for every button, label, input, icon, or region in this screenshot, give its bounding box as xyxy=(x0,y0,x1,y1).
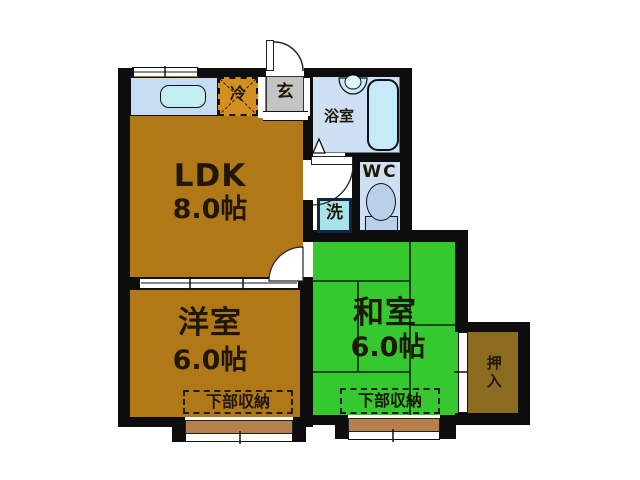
wall-mid-vertical xyxy=(300,288,313,427)
entrance-door-panel xyxy=(266,40,274,71)
wall-partition-stub-l xyxy=(128,277,140,290)
wall-west-bottom-stub-l xyxy=(172,417,185,442)
storage-western-box: 下部収納 xyxy=(183,390,293,414)
wall-top-right xyxy=(304,68,412,77)
kitchen-sink xyxy=(160,85,206,108)
bathtub xyxy=(367,79,399,151)
closet-sliding-door xyxy=(458,332,468,413)
corridor-door-panel xyxy=(311,156,353,165)
japanese-balcony-window xyxy=(348,431,440,440)
ldk-name: LDK xyxy=(130,160,290,193)
wall-corridor-wc xyxy=(352,162,360,233)
floor-plan: 下部収納 下部収納 LDK 8.0帖 洋室 6.0帖 和室 6.0帖 浴室 WC… xyxy=(0,0,640,480)
western-balcony xyxy=(185,420,293,434)
storage-japanese-box: 下部収納 xyxy=(340,388,440,414)
toilet-bowl xyxy=(366,183,396,221)
wall-top-corner xyxy=(118,68,134,77)
japanese-room-size: 6.0帖 xyxy=(318,334,458,362)
wall-left xyxy=(118,68,130,427)
wall-jp-bottom-stub-r xyxy=(440,415,456,439)
wall-japanese-right xyxy=(455,230,468,330)
western-balcony-window xyxy=(185,433,293,442)
wall-closet-bottom xyxy=(455,413,530,425)
wall-west-bottom-stub-r xyxy=(293,417,306,442)
wc-label: WC xyxy=(360,164,400,182)
wall-partition-stub-r xyxy=(298,277,313,290)
closet-label: 押入 xyxy=(485,355,501,391)
western-room-size: 6.0帖 xyxy=(130,347,290,375)
wall-closet-right xyxy=(518,322,530,425)
entrance-label: 玄 xyxy=(267,84,303,102)
fridge-label: 冷 xyxy=(219,86,257,103)
storage-japanese-label: 下部収納 xyxy=(358,393,422,410)
washer-label: 洗 xyxy=(318,205,351,223)
wall-bath-corridor xyxy=(345,153,400,162)
wall-ldk-corridor xyxy=(303,200,313,232)
wall-right-column xyxy=(400,68,412,242)
bathroom-label: 浴室 xyxy=(315,109,363,125)
wall-jp-bottom-stub-l xyxy=(335,415,348,439)
entrance-door-arc xyxy=(274,42,303,71)
japanese-balcony xyxy=(348,418,440,432)
storage-western-label: 下部収納 xyxy=(206,394,270,411)
entrance-step xyxy=(263,111,308,121)
ldk-west-sliding-partition xyxy=(140,277,298,290)
japanese-room-name: 和室 xyxy=(315,297,455,330)
ldk-size: 8.0帖 xyxy=(130,196,290,224)
wall-top-mid xyxy=(198,68,266,77)
western-room-name: 洋室 xyxy=(130,307,290,340)
